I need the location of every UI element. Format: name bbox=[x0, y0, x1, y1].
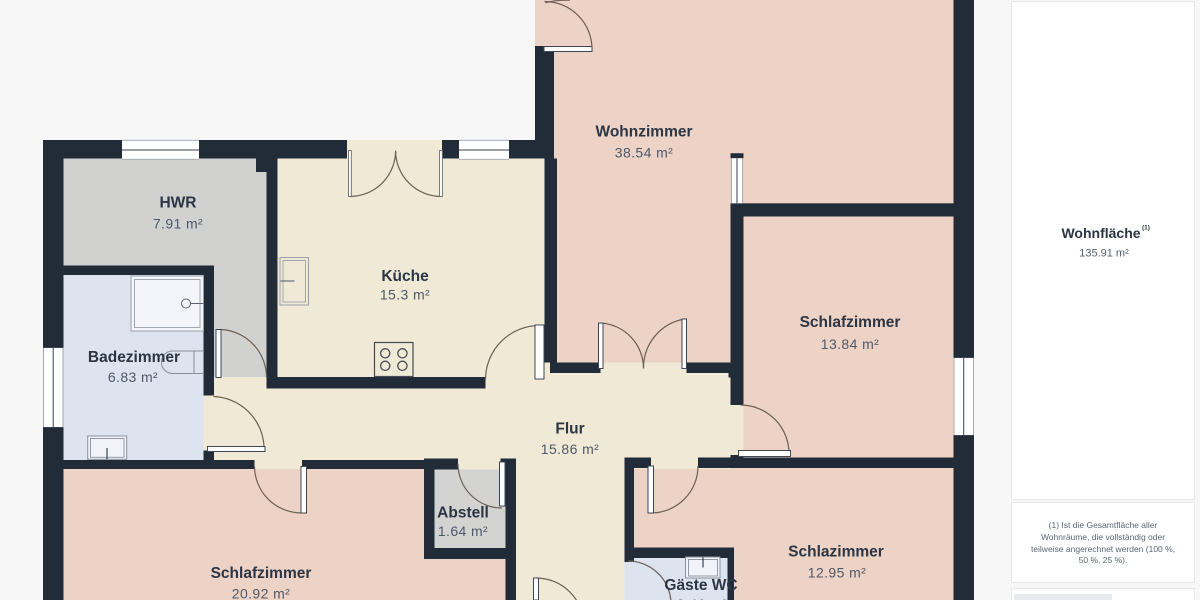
svg-text:Gäste WC: Gäste WC bbox=[664, 577, 737, 594]
svg-text:Küche: Küche bbox=[381, 268, 429, 285]
svg-text:Abstell: Abstell bbox=[437, 505, 489, 522]
svg-text:12.95 m²: 12.95 m² bbox=[808, 565, 866, 581]
svg-text:Schlazimmer: Schlazimmer bbox=[788, 544, 884, 561]
svg-text:3.46 m²: 3.46 m² bbox=[677, 596, 727, 600]
svg-text:Schlafzimmer: Schlafzimmer bbox=[800, 314, 901, 331]
svg-text:Badezimmer: Badezimmer bbox=[88, 349, 180, 366]
svg-text:Wohnzimmer: Wohnzimmer bbox=[595, 124, 692, 141]
svg-text:(1): (1) bbox=[1142, 225, 1150, 232]
svg-text:15.86 m²: 15.86 m² bbox=[541, 441, 599, 457]
svg-text:135.91 m²: 135.91 m² bbox=[1079, 248, 1129, 260]
svg-text:20.92 m²: 20.92 m² bbox=[232, 586, 290, 600]
svg-text:HWR: HWR bbox=[159, 195, 196, 212]
svg-text:6.83 m²: 6.83 m² bbox=[108, 369, 158, 385]
svg-text:38.54 m²: 38.54 m² bbox=[615, 145, 673, 161]
svg-text:Flur: Flur bbox=[555, 421, 584, 438]
svg-text:Wohnfläche: Wohnfläche bbox=[1061, 225, 1140, 241]
svg-text:1.64 m²: 1.64 m² bbox=[438, 523, 488, 539]
svg-text:13.84 m²: 13.84 m² bbox=[821, 336, 879, 352]
svg-text:Schlafzimmer: Schlafzimmer bbox=[211, 565, 312, 582]
svg-text:15.3 m²: 15.3 m² bbox=[380, 287, 430, 303]
svg-text:7.91 m²: 7.91 m² bbox=[153, 216, 203, 232]
